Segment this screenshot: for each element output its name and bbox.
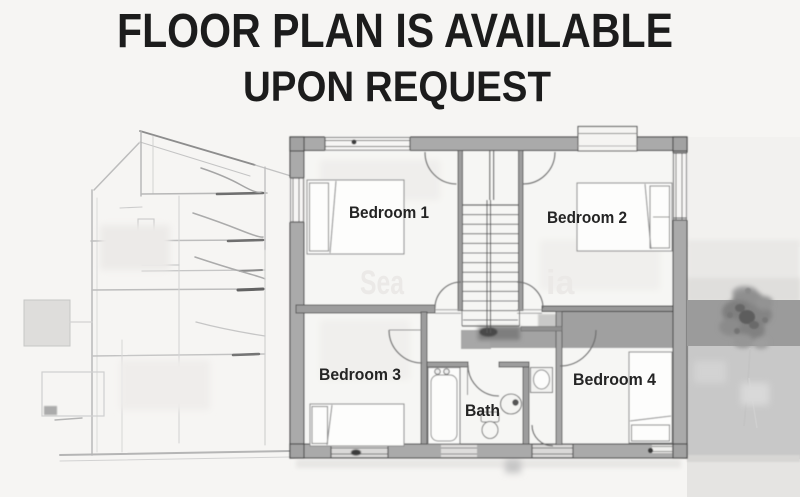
svg-text:FLOOR PLAN IS AVAILABLE: FLOOR PLAN IS AVAILABLE — [117, 5, 673, 58]
svg-text:Bath: Bath — [465, 401, 500, 420]
svg-text:Bedroom 2: Bedroom 2 — [547, 208, 627, 227]
svg-text:UPON REQUEST: UPON REQUEST — [243, 63, 551, 111]
svg-text:Sea: Sea — [360, 264, 405, 302]
svg-text:Bedroom 1: Bedroom 1 — [349, 203, 429, 222]
svg-text:Bedroom 4: Bedroom 4 — [573, 370, 657, 389]
svg-text:ia: ia — [546, 264, 575, 302]
svg-text:Bedroom 3: Bedroom 3 — [319, 365, 401, 384]
